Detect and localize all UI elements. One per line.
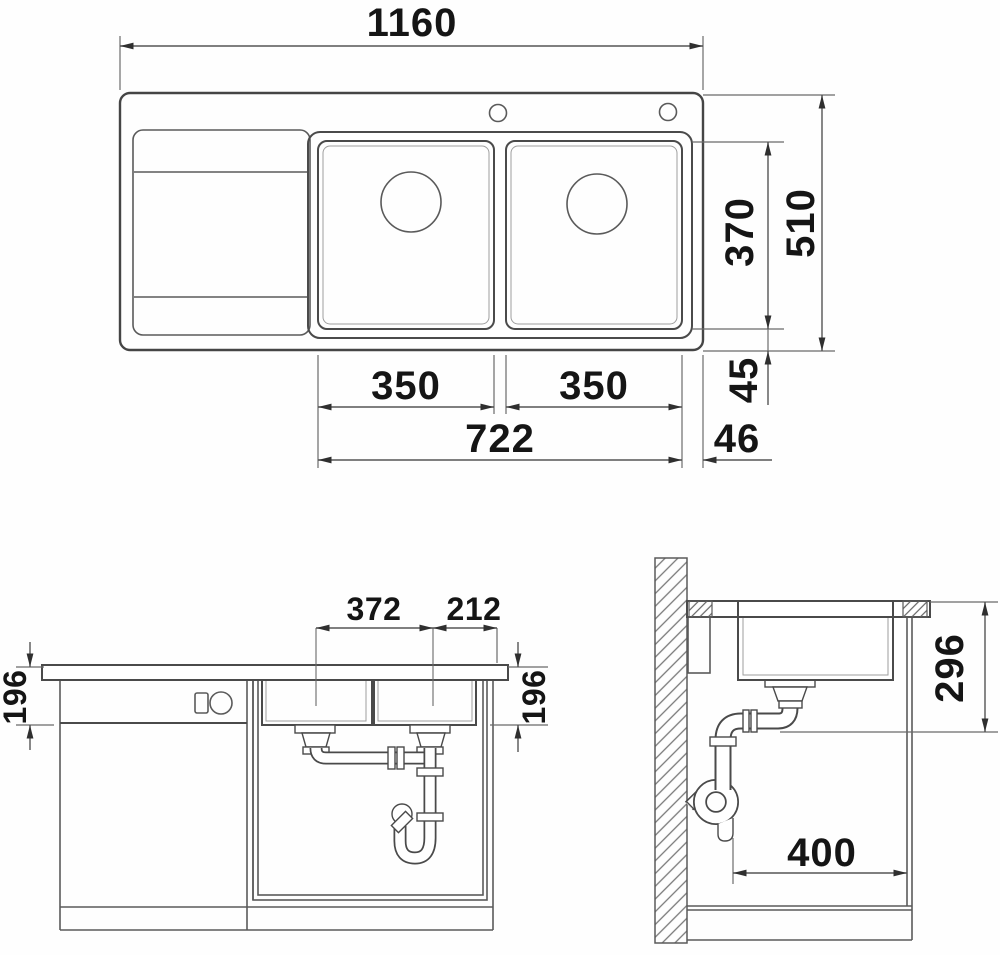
side-view: 296 400	[655, 558, 998, 943]
dim-label-350-left: 350	[371, 364, 441, 408]
front-view: 372 212 196 196	[0, 591, 552, 930]
bowl-left	[318, 141, 494, 329]
dim-label-370: 370	[718, 197, 762, 267]
control-button-icon	[195, 693, 208, 713]
sink-cabinet-box	[253, 680, 487, 900]
dim-label-1160: 1160	[367, 1, 458, 45]
waste-plumbing-side	[686, 680, 815, 841]
dim-drain-spacing: 372 212	[316, 591, 501, 706]
dim-wall-clearance: 400	[733, 831, 907, 884]
dim-label-45: 45	[722, 357, 766, 404]
tap-hole-icon	[660, 104, 677, 121]
dim-bowl-field-depth: 370	[692, 142, 784, 329]
drawing-sheet: 1160 370	[0, 0, 1000, 955]
wall-section	[655, 558, 687, 943]
dim-label-46: 46	[714, 417, 761, 461]
tap-hole-icon	[490, 105, 507, 122]
dim-label-350-right: 350	[559, 364, 629, 408]
dim-rear-rim: 45	[722, 329, 768, 405]
dim-label-510: 510	[779, 188, 823, 258]
drain-icon	[567, 174, 627, 234]
drain-flange-icon	[765, 680, 815, 687]
dim-label-196-right: 196	[516, 670, 552, 725]
bowl-right	[506, 141, 682, 329]
technical-drawing: 1160 370	[0, 0, 1000, 955]
dim-bowl-depth-right: 196	[490, 642, 552, 752]
dim-label-372: 372	[347, 591, 402, 627]
dim-underside-depth: 296	[928, 602, 998, 732]
dim-label-400: 400	[787, 831, 857, 875]
rear-rail	[688, 617, 710, 673]
top-view: 1160 370	[120, 1, 835, 468]
countertop	[42, 665, 508, 680]
dim-label-722: 722	[465, 417, 535, 461]
drain-flange-icon	[295, 725, 335, 733]
dim-label-296: 296	[928, 633, 972, 703]
dim-bowl-widths: 350 350 722 46	[318, 355, 772, 468]
bowl-unit	[308, 132, 692, 338]
dim-label-212: 212	[447, 591, 502, 627]
waste-plumbing	[295, 725, 450, 858]
drain-flange-icon	[410, 725, 450, 733]
drain-icon	[381, 172, 441, 232]
countertop-side	[687, 601, 930, 617]
bowls-section	[262, 680, 476, 725]
drainboard	[133, 130, 310, 335]
dim-overall-width: 1160	[120, 1, 703, 90]
dim-bowl-depth-left: 196	[0, 642, 54, 750]
control-knob-icon	[210, 692, 232, 714]
dim-label-196-left: 196	[0, 670, 33, 725]
